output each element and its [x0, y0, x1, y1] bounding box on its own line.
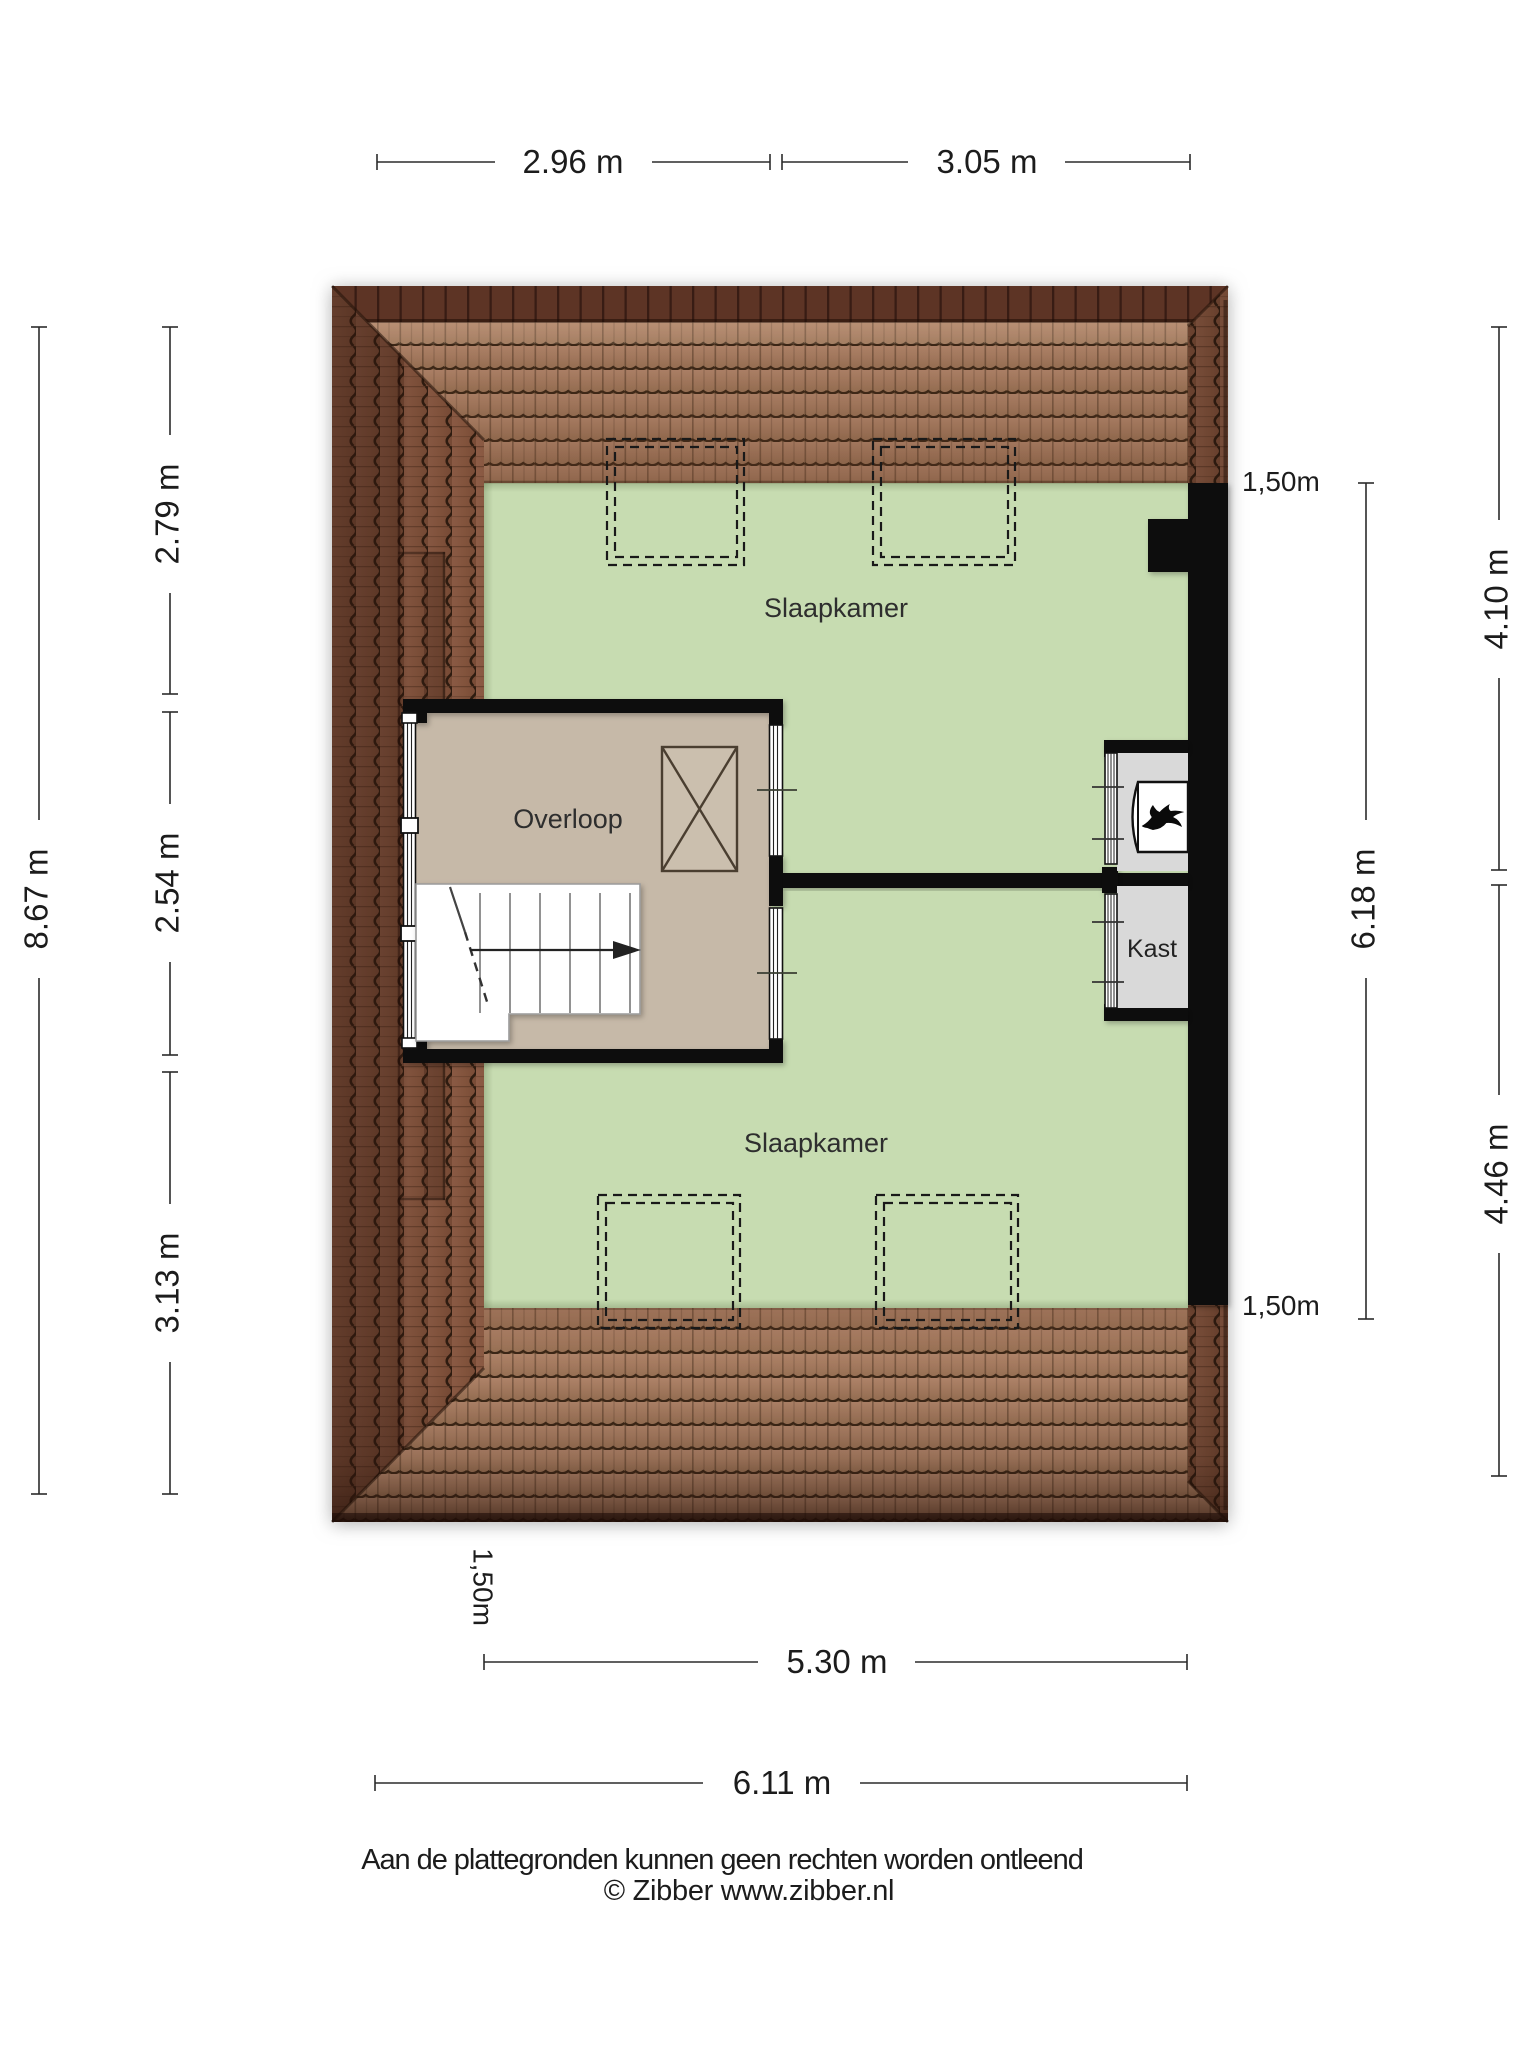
svg-text:2.54 m: 2.54 m	[149, 833, 186, 934]
svg-text:6.18 m: 6.18 m	[1345, 849, 1382, 950]
svg-text:3.13 m: 3.13 m	[149, 1233, 186, 1334]
svg-text:1,50m: 1,50m	[1242, 1290, 1320, 1321]
svg-text:2.79 m: 2.79 m	[149, 464, 186, 565]
svg-text:1,50m: 1,50m	[1242, 466, 1320, 497]
svg-text:2.96 m: 2.96 m	[523, 143, 624, 180]
svg-text:Aan de plattegronden kunnen ge: Aan de plattegronden kunnen geen rechten…	[361, 1844, 1083, 1876]
svg-text:8.67 m: 8.67 m	[18, 849, 55, 950]
svg-text:Overloop: Overloop	[513, 804, 623, 834]
svg-text:4.46 m: 4.46 m	[1478, 1124, 1515, 1225]
svg-text:3.05 m: 3.05 m	[937, 143, 1038, 180]
svg-text:Slaapkamer: Slaapkamer	[744, 1128, 888, 1158]
svg-text:© Zibber www.zibber.nl: © Zibber www.zibber.nl	[604, 1875, 894, 1907]
svg-text:5.30 m: 5.30 m	[787, 1643, 888, 1680]
svg-text:Slaapkamer: Slaapkamer	[764, 593, 908, 623]
svg-text:Kast: Kast	[1127, 935, 1177, 963]
svg-text:1,50m: 1,50m	[468, 1548, 499, 1626]
svg-text:4.10 m: 4.10 m	[1478, 549, 1515, 650]
svg-text:6.11 m: 6.11 m	[733, 1764, 831, 1801]
